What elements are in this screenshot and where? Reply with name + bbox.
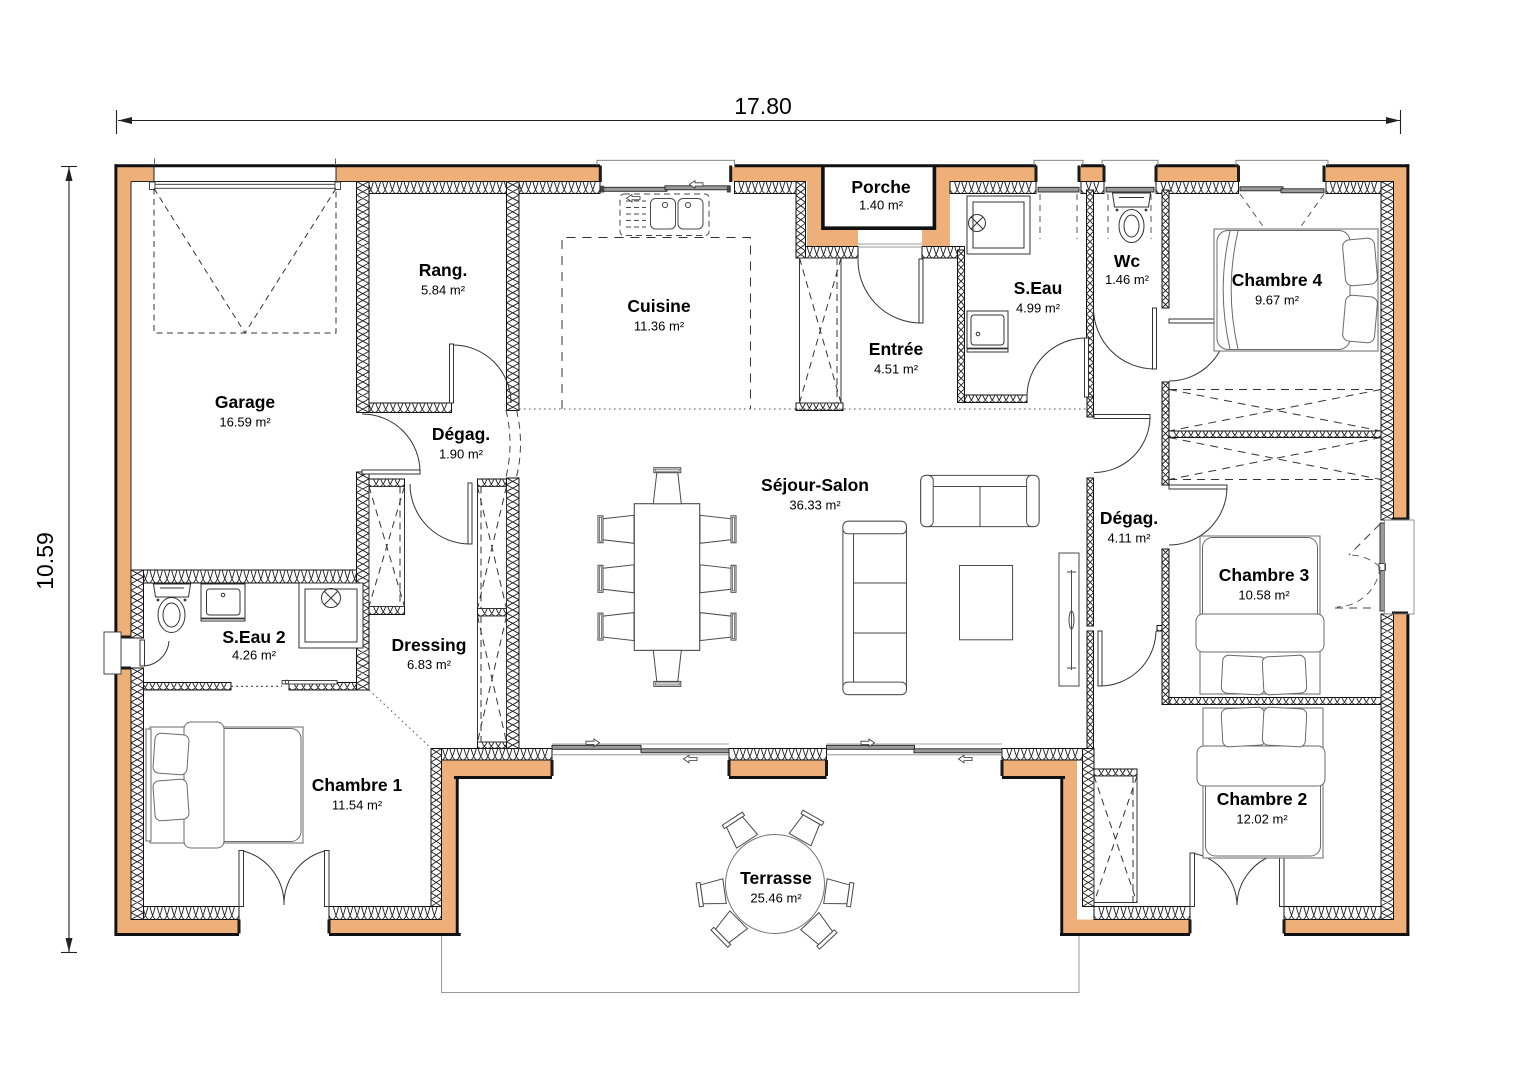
svg-text:Wc: Wc	[1114, 251, 1141, 271]
svg-text:12.02 m²: 12.02 m²	[1236, 812, 1288, 827]
svg-text:Terrasse: Terrasse	[740, 868, 812, 888]
svg-text:10.58 m²: 10.58 m²	[1238, 588, 1290, 603]
svg-text:Séjour-Salon: Séjour-Salon	[761, 475, 869, 495]
svg-text:Chambre 4: Chambre 4	[1232, 270, 1323, 290]
svg-text:11.36 m²: 11.36 m²	[634, 319, 685, 334]
svg-text:16.59 m²: 16.59 m²	[219, 415, 271, 430]
svg-text:Chambre 2: Chambre 2	[1217, 789, 1308, 809]
svg-text:4.99 m²: 4.99 m²	[1016, 301, 1061, 316]
svg-text:36.33 m²: 36.33 m²	[789, 498, 841, 513]
svg-text:S.Eau 2: S.Eau 2	[222, 627, 285, 647]
svg-text:17.80: 17.80	[734, 93, 792, 119]
svg-text:Cuisine: Cuisine	[627, 296, 690, 316]
svg-text:Dégag.: Dégag.	[432, 424, 490, 444]
svg-text:Chambre 3: Chambre 3	[1219, 565, 1310, 585]
svg-text:4.26 m²: 4.26 m²	[232, 648, 277, 663]
svg-text:Entrée: Entrée	[869, 339, 924, 359]
svg-text:Garage: Garage	[215, 392, 276, 412]
svg-text:Dressing: Dressing	[392, 635, 467, 655]
svg-text:Chambre 1: Chambre 1	[312, 775, 403, 795]
svg-text:4.11 m²: 4.11 m²	[1107, 531, 1151, 546]
svg-text:S.Eau: S.Eau	[1014, 278, 1063, 298]
svg-text:10.59: 10.59	[32, 532, 58, 590]
svg-text:Dégag.: Dégag.	[1100, 508, 1158, 528]
svg-text:5.84 m²: 5.84 m²	[421, 283, 466, 298]
svg-text:1.46 m²: 1.46 m²	[1105, 272, 1150, 287]
svg-text:Porche: Porche	[851, 177, 911, 197]
svg-text:25.46 m²: 25.46 m²	[750, 891, 802, 906]
svg-text:4.51 m²: 4.51 m²	[874, 362, 919, 377]
svg-text:Rang.: Rang.	[419, 260, 468, 280]
svg-text:11.54 m²: 11.54 m²	[332, 798, 383, 813]
svg-text:9.67 m²: 9.67 m²	[1255, 293, 1300, 308]
svg-text:6.83 m²: 6.83 m²	[407, 657, 452, 672]
svg-text:1.40 m²: 1.40 m²	[859, 198, 904, 213]
svg-text:1.90 m²: 1.90 m²	[439, 447, 484, 462]
